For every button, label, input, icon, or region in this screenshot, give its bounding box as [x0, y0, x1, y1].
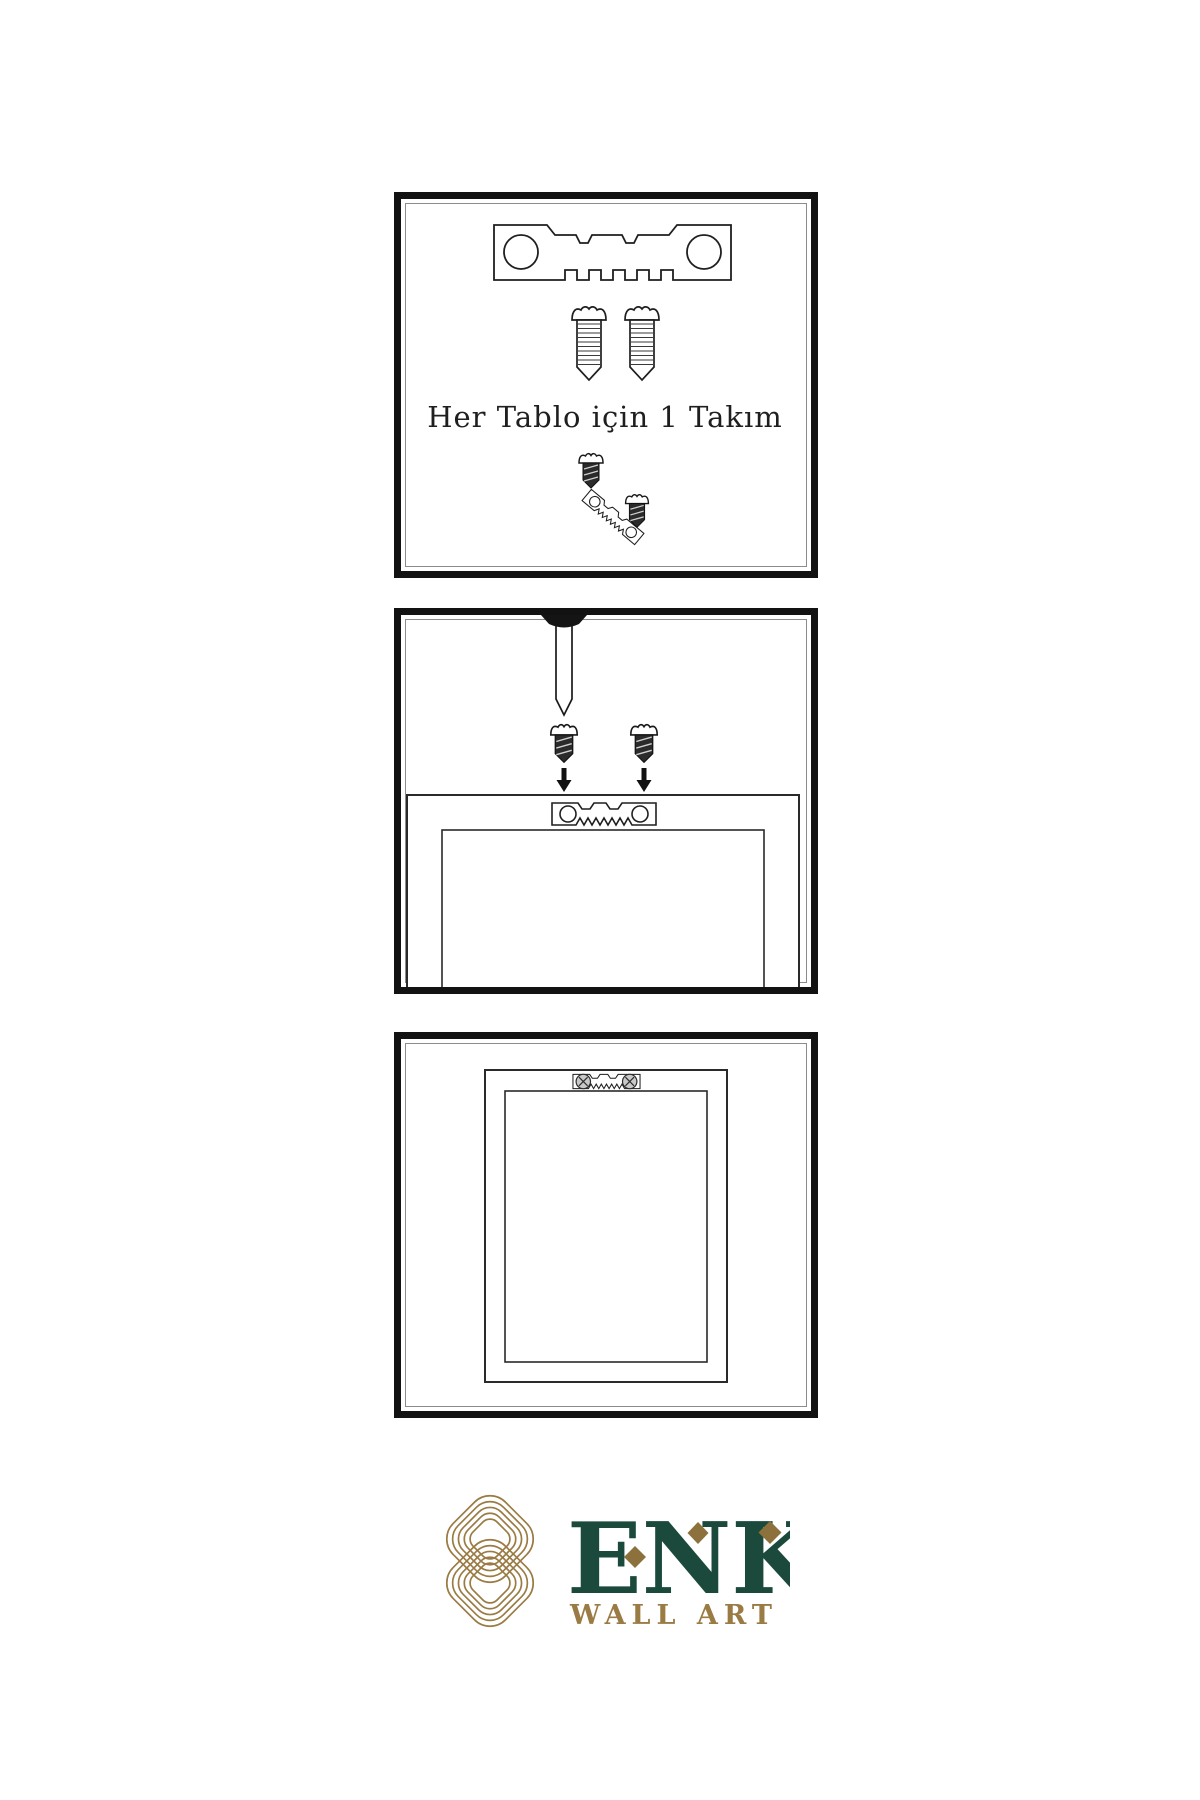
knot-logo-icon	[438, 1488, 543, 1635]
down-arrow-icon	[557, 768, 572, 792]
hung-frame-icon	[485, 1070, 727, 1382]
step1-panel: Her Tablo için 1 Takım	[394, 192, 818, 578]
frame-back-icon	[407, 795, 799, 987]
instruction-sheet: Her Tablo için 1 Takım	[0, 0, 1200, 1800]
step2-panel	[394, 608, 818, 994]
step1-caption: Her Tablo için 1 Takım	[427, 400, 783, 434]
screw-dark-icon	[551, 725, 577, 763]
brand-subtitle: WALL ART	[569, 1600, 778, 1631]
screw-dark-icon	[631, 725, 657, 763]
nail-icon	[541, 615, 587, 715]
step2-illustration	[401, 615, 811, 987]
step3-panel	[394, 1032, 818, 1418]
screw-icon	[572, 307, 606, 380]
step1-illustration: Her Tablo için 1 Takım	[401, 199, 811, 571]
screw-dark-icon	[579, 454, 603, 488]
brand-logo: ENK WALL ART	[430, 1488, 790, 1638]
down-arrow-icon	[637, 768, 652, 792]
sawtooth-hanger-icon	[494, 225, 731, 280]
step3-illustration	[401, 1039, 811, 1411]
screw-icon	[625, 307, 659, 380]
